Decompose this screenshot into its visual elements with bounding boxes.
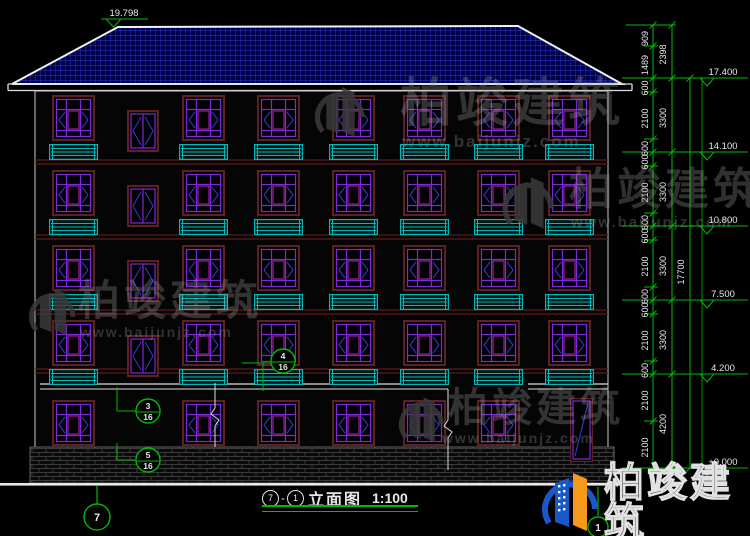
marker-num: 5	[146, 450, 151, 460]
title-axis-start-bubble: 7	[262, 490, 279, 507]
marker-den: 16	[278, 362, 288, 372]
window	[258, 96, 299, 140]
stairwell-window	[128, 186, 158, 226]
window	[258, 171, 299, 215]
louver-box	[401, 295, 449, 310]
axis-number: 7	[94, 512, 100, 524]
ground-window	[404, 401, 445, 445]
louver-box	[401, 370, 449, 385]
dim-value: 600	[640, 154, 650, 169]
dim-value: 600	[640, 289, 650, 304]
louver-box	[255, 145, 303, 160]
louver-box	[180, 370, 228, 385]
louver-box	[180, 145, 228, 160]
louver-box	[401, 220, 449, 235]
dim-value: 2100	[640, 256, 650, 276]
dim-value: 600	[640, 302, 650, 317]
louver-box	[330, 145, 378, 160]
dim-value: 600	[640, 228, 650, 243]
window	[333, 96, 374, 140]
louver-box	[546, 220, 594, 235]
axis-bubble-7: 7	[84, 486, 110, 530]
window	[404, 321, 445, 365]
window	[333, 171, 374, 215]
elevation-value: 4.200	[711, 363, 735, 374]
louver-box	[255, 220, 303, 235]
window	[258, 246, 299, 290]
dim-total-value: 17700	[676, 259, 686, 284]
ridge-elevation-value: 19.798	[109, 8, 138, 19]
louver-box	[255, 295, 303, 310]
dim-value: 2100	[640, 390, 650, 410]
cad-elevation-drawing: 9091489600210060060021006006002100600600…	[0, 0, 750, 536]
elevation-symbol-icon	[101, 19, 148, 27]
ridge-elevation-marker: 19.798	[101, 8, 148, 27]
window	[53, 171, 94, 215]
window	[478, 321, 519, 365]
stairwell-window	[128, 336, 158, 376]
title-separator: -	[281, 491, 285, 505]
louver-box	[401, 145, 449, 160]
louver-box	[475, 220, 523, 235]
elevation-value: 7.500	[711, 289, 735, 300]
louver-box	[50, 370, 98, 385]
ground-window	[478, 401, 519, 445]
louver-box	[546, 370, 594, 385]
dim-value: 600	[640, 141, 650, 156]
stairwell-window	[128, 261, 158, 301]
louver-box	[180, 295, 228, 310]
brick-plinth	[30, 447, 614, 483]
dim-value: 2100	[640, 330, 650, 350]
window	[53, 321, 94, 365]
elevation-drawing-canvas: 9091489600210060060021006006002100600600…	[0, 0, 750, 536]
window	[183, 96, 224, 140]
window	[549, 96, 590, 140]
stairwell-window	[128, 111, 158, 151]
dim-value: 3300	[658, 108, 668, 128]
window	[549, 321, 590, 365]
dim-value: 2100	[640, 182, 650, 202]
ground-window	[183, 401, 224, 445]
window	[478, 171, 519, 215]
title-axis-end-bubble: 1	[287, 490, 304, 507]
window	[333, 321, 374, 365]
dim-value: 909	[640, 31, 650, 46]
title-scale: 1:100	[372, 490, 408, 506]
ground-window	[258, 401, 299, 445]
marker-num: 3	[146, 401, 151, 411]
elevation-value: 14.100	[708, 141, 737, 152]
dim-value: 2398	[658, 44, 668, 64]
louver-box	[330, 220, 378, 235]
window	[333, 246, 374, 290]
brand-logo: 柏竣建筑 www.baijunjz.com	[540, 463, 750, 536]
dim-value: 600	[640, 215, 650, 230]
louver-box	[475, 295, 523, 310]
entrance-door	[571, 399, 593, 462]
louver-box	[475, 145, 523, 160]
marker-den: 16	[143, 412, 153, 422]
dim-value: 3300	[658, 182, 668, 202]
louver-box	[330, 295, 378, 310]
window	[53, 96, 94, 140]
louver-box	[546, 145, 594, 160]
window	[404, 246, 445, 290]
window	[549, 171, 590, 215]
window	[478, 246, 519, 290]
louver-box	[330, 370, 378, 385]
window	[183, 171, 224, 215]
louver-box	[546, 295, 594, 310]
window	[404, 171, 445, 215]
elevation-value: 17.400	[708, 67, 737, 78]
marker-den: 16	[143, 461, 153, 471]
window	[549, 246, 590, 290]
elevation-value: 10.800	[708, 215, 737, 226]
louver-box	[180, 220, 228, 235]
marker-num: 4	[281, 351, 286, 361]
brand-logo-icon	[540, 465, 600, 536]
dim-value: 3300	[658, 330, 668, 350]
dim-value: 2100	[640, 437, 650, 457]
dim-value: 3300	[658, 256, 668, 276]
window	[478, 96, 519, 140]
louver-box	[475, 370, 523, 385]
louver-box	[50, 145, 98, 160]
window	[404, 96, 445, 140]
dim-value: 2100	[640, 108, 650, 128]
window	[183, 321, 224, 365]
dim-value: 600	[640, 363, 650, 378]
ground-window	[333, 401, 374, 445]
dim-value: 4200	[658, 414, 668, 434]
window	[53, 246, 94, 290]
ground-window	[53, 401, 94, 445]
roof	[12, 26, 622, 84]
dim-value: 1489	[640, 55, 650, 75]
dim-value: 600	[640, 80, 650, 95]
window	[183, 246, 224, 290]
louver-box	[50, 295, 98, 310]
title-underline	[262, 505, 418, 512]
louver-box	[50, 220, 98, 235]
brand-logo-text: 柏竣建筑	[604, 463, 750, 536]
